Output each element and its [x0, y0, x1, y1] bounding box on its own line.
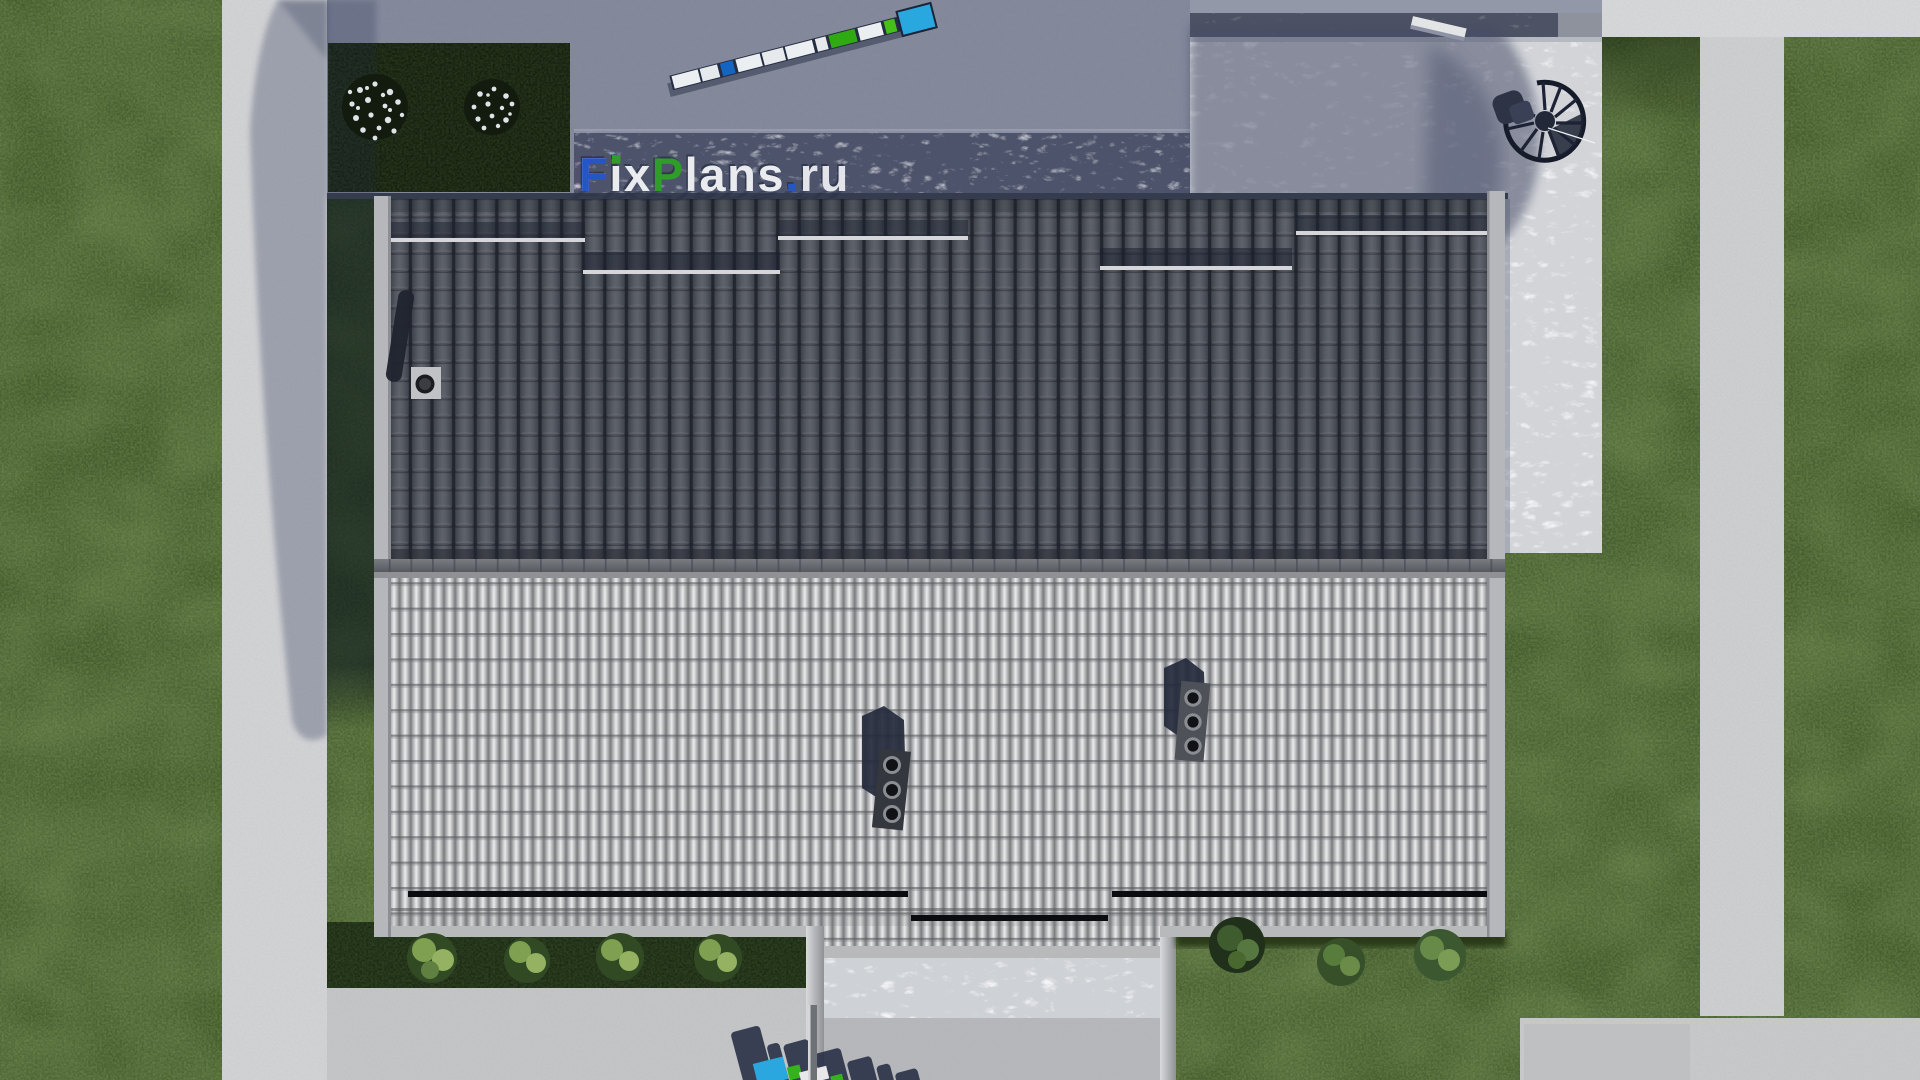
svg-text:F: F — [579, 148, 609, 201]
